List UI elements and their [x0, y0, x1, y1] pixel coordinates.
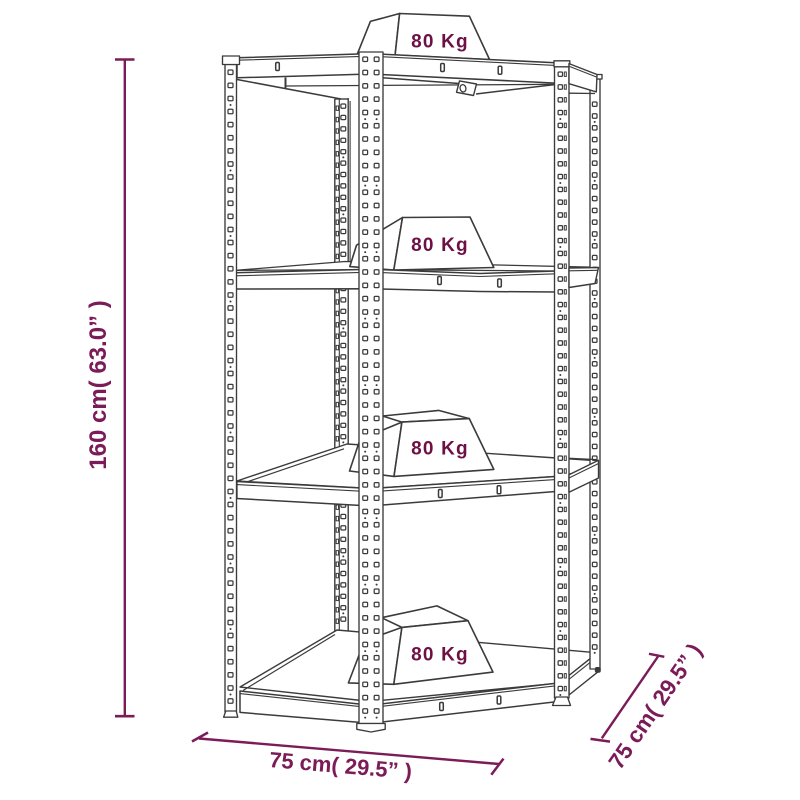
svg-text:80 Kg: 80 Kg: [411, 439, 469, 460]
svg-text:160 cm( 63.0” ): 160 cm( 63.0” ): [85, 300, 112, 469]
svg-text:80 Kg: 80 Kg: [411, 645, 469, 666]
svg-text:80 Kg: 80 Kg: [411, 235, 469, 256]
svg-text:80 Kg: 80 Kg: [411, 32, 469, 53]
